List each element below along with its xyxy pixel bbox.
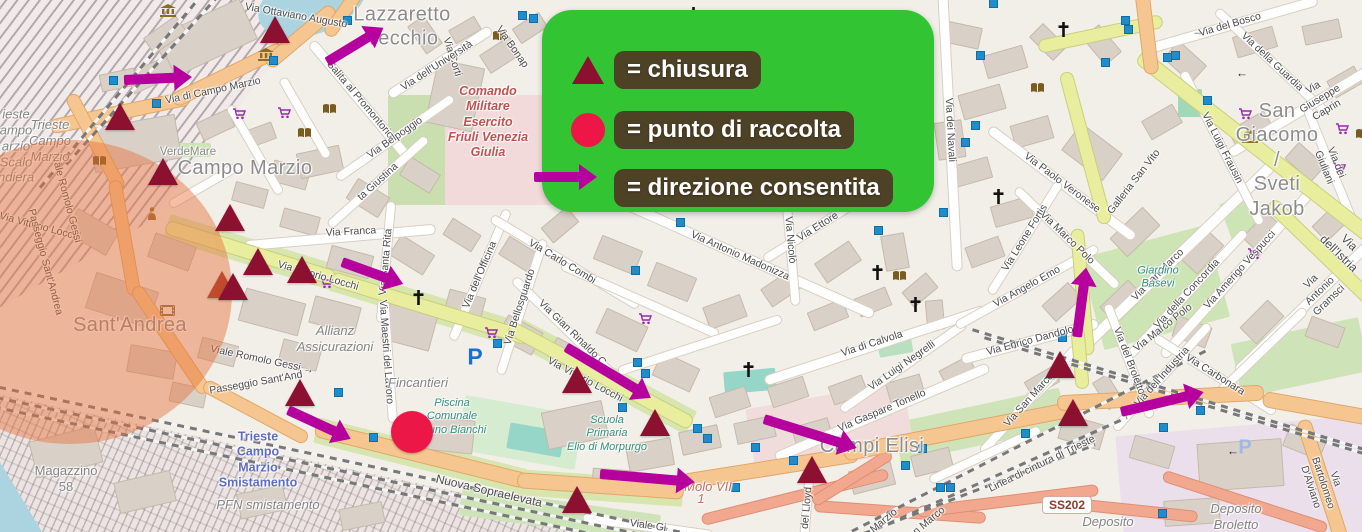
transit-stop-square (1203, 96, 1212, 105)
parking-icon: P (467, 344, 482, 371)
building (1141, 103, 1183, 140)
direction-arrow-head (579, 164, 597, 190)
transit-stop-square (1124, 25, 1133, 34)
transit-stop-square (334, 388, 343, 397)
closure-triangle (218, 273, 248, 300)
direction-arrow-head (1183, 379, 1207, 408)
building (308, 295, 362, 334)
transit-stop-square (918, 444, 927, 453)
legend-label-assembly-point: = punto di raccolta (614, 111, 854, 149)
assembly-point-circle (391, 411, 433, 453)
transit-stop-square (901, 461, 910, 470)
transit-stop-square (618, 403, 627, 412)
route-badge: SS202 (1042, 496, 1092, 514)
oneway-arrow-icon: → (289, 359, 301, 373)
closure-triangle (105, 103, 135, 130)
transit-stop-square (1021, 429, 1030, 438)
transit-stop-square (269, 56, 278, 65)
oneway-arrow-icon: → (1236, 70, 1248, 84)
legend-row-assembly-point: = punto di raccolta (556, 106, 926, 154)
transit-stop-square (676, 218, 685, 227)
direction-arrow-body (1072, 283, 1089, 337)
direction-arrow-head (1071, 266, 1099, 287)
direction-arrow (534, 164, 597, 190)
direction-arrow-body (534, 172, 581, 182)
closure-triangle-icon (572, 56, 604, 84)
building (442, 218, 481, 253)
oneway-arrow-icon: → (1227, 448, 1239, 462)
direction-arrow-body (124, 73, 176, 85)
transit-stop-square (989, 0, 998, 8)
closure-triangle (287, 256, 317, 283)
closure-triangle (1058, 399, 1088, 426)
transit-stop-square (493, 339, 502, 348)
building (279, 207, 321, 236)
building (541, 400, 610, 450)
transit-stop-square (1121, 16, 1130, 25)
closure-triangle (640, 409, 670, 436)
transit-stop-square (874, 226, 883, 235)
transit-stop-square (633, 358, 642, 367)
transit-stop-square (152, 99, 161, 108)
closure-triangle (260, 16, 290, 43)
parking-pale-icon: P (1238, 437, 1251, 460)
building (814, 240, 862, 283)
closure-triangle (243, 248, 273, 275)
building (982, 45, 1029, 80)
transit-stop-square (1101, 58, 1110, 67)
direction-arrow-head (173, 64, 192, 91)
transit-stop-square (343, 16, 352, 25)
building (407, 15, 443, 54)
map-label: Fincantieri (388, 375, 448, 391)
map-canvas[interactable]: = chiusura = punto di raccolta = direzio… (0, 0, 1362, 532)
legend-label-allowed-direction: = direzione consentita (614, 169, 893, 207)
transit-stop-square (731, 483, 740, 492)
direction-arrow-body (600, 469, 680, 486)
direction-arrow (123, 64, 192, 93)
building (964, 236, 1005, 269)
transit-stop-square (1159, 423, 1168, 432)
building (880, 232, 910, 272)
transit-stop-square (976, 51, 985, 60)
building (1301, 18, 1342, 45)
closure-triangle (797, 456, 827, 483)
transit-stop-square (971, 121, 980, 130)
building (957, 83, 1006, 120)
transit-stop-square (939, 208, 948, 217)
transit-stop-square (631, 266, 640, 275)
transit-stop-square (946, 483, 955, 492)
transit-stop-square (1171, 51, 1180, 60)
direction-arrow-body (324, 32, 372, 66)
transit-stop-square (518, 11, 527, 20)
transit-stop-square (529, 14, 538, 23)
transit-stop-square (641, 369, 650, 378)
legend-row-allowed-direction: = direzione consentita (556, 164, 926, 212)
transit-stop-square (109, 76, 118, 85)
building (647, 262, 698, 303)
transit-stop-square (751, 443, 760, 452)
legend-label-closure: = chiusura (614, 51, 761, 89)
legend-row-closure: = chiusura (556, 46, 926, 94)
legend-panel: = chiusura = punto di raccolta = direzio… (542, 10, 934, 212)
transit-stop-square (369, 433, 378, 442)
transit-stop-square (961, 138, 970, 147)
building (702, 294, 748, 330)
oneway-arrow-icon: → (1192, 24, 1204, 38)
direction-arrow-head (676, 468, 696, 495)
closure-triangle (148, 158, 178, 185)
closure-triangle (1045, 351, 1075, 378)
closure-triangle (562, 486, 592, 513)
transit-stop-square (693, 424, 702, 433)
closure-triangle (215, 204, 245, 231)
transit-stop-square (703, 434, 712, 443)
transit-stop-square (1158, 509, 1167, 518)
transit-stop-square (936, 483, 945, 492)
map-label: 1 (697, 491, 704, 507)
assembly-point-circle-icon (571, 113, 605, 147)
